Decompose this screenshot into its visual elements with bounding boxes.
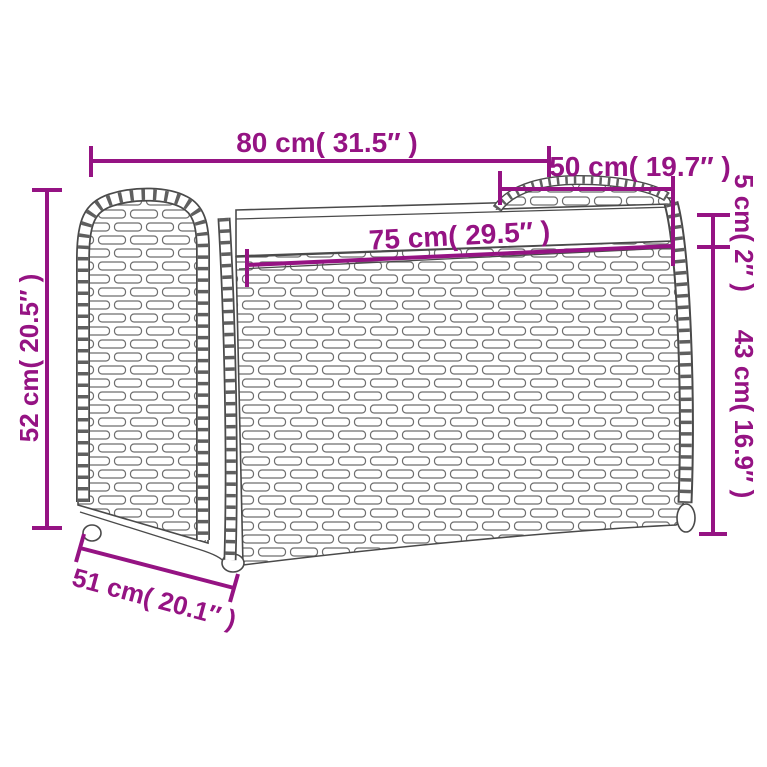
dim-total-width-label: 80 cm( 31.5″ ) [236, 127, 418, 158]
product-dimension-diagram: 80 cm( 31.5″ ) 50 cm( 19.7″ ) 75 cm( 29.… [0, 0, 767, 767]
dim-total-height-label: 52 cm( 20.5″ ) [14, 274, 44, 443]
dim-depth-label: 51 cm( 20.1″ ) [69, 562, 240, 635]
bench-armrest [78, 190, 208, 543]
dim-lid-height-line [697, 215, 730, 247]
dim-side-height-line [699, 247, 727, 534]
dim-side-height-label: 43 cm( 16.9″ ) [729, 330, 759, 499]
bench-body-front-panel [236, 241, 683, 565]
bench-right-foot [677, 504, 695, 532]
dim-lid-height-label: 5 cm( 2″ ) [729, 174, 759, 292]
bench-dimension-drawing: 80 cm( 31.5″ ) 50 cm( 19.7″ ) 75 cm( 29.… [0, 0, 767, 767]
bench-left-foot [83, 525, 101, 541]
dim-lid-width-label: 50 cm( 19.7″ ) [549, 151, 731, 182]
body-left-braided-edge [224, 218, 231, 560]
